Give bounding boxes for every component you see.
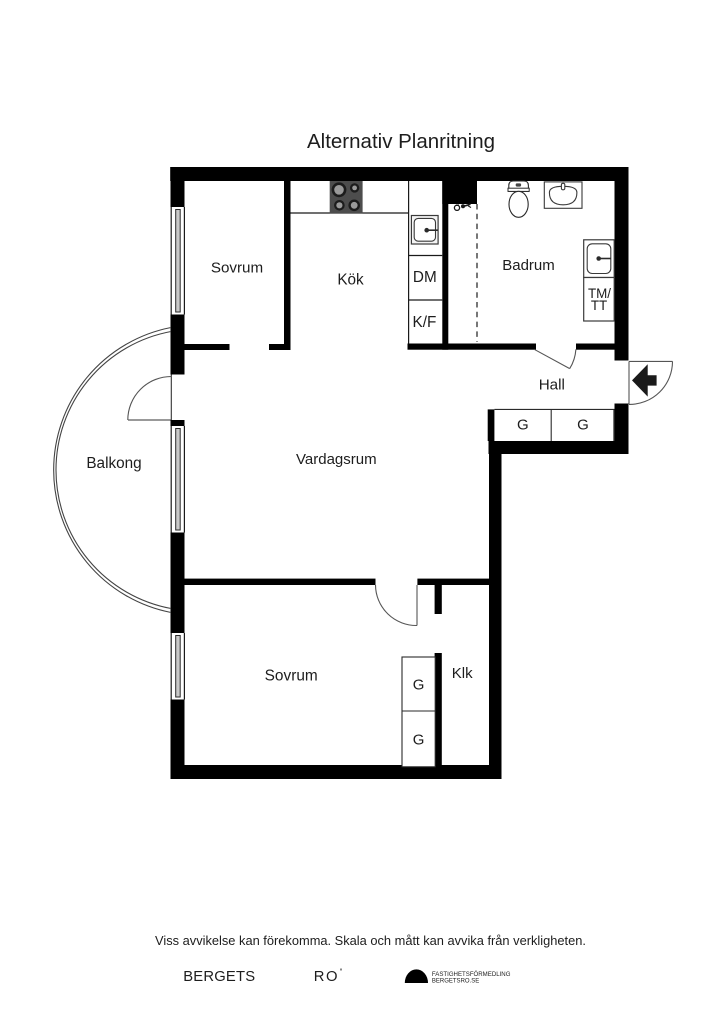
svg-text:BERGETS: BERGETS (183, 969, 255, 985)
svg-text:Kök: Kök (337, 272, 364, 289)
svg-text:BERGETSRO.SE: BERGETSRO.SE (432, 979, 479, 985)
svg-text:RO: RO (314, 969, 339, 985)
svg-text:G: G (577, 416, 589, 433)
svg-text:Balkong: Balkong (86, 455, 141, 472)
svg-text:Sovrum: Sovrum (211, 259, 263, 276)
svg-text:Vardagsrum: Vardagsrum (296, 451, 377, 468)
svg-text:TT: TT (591, 298, 607, 313)
svg-text:Sovrum: Sovrum (265, 667, 318, 684)
svg-text:G: G (413, 676, 425, 693)
svg-text:Alternativ Planritning: Alternativ Planritning (307, 130, 495, 153)
svg-text:Badrum: Badrum (502, 257, 555, 274)
svg-text:FASTIGHETSFÖRMEDLING: FASTIGHETSFÖRMEDLING (432, 971, 511, 978)
svg-text:Klk: Klk (452, 665, 473, 682)
svg-text:G: G (413, 731, 425, 748)
svg-text:G: G (517, 416, 529, 433)
svg-text:K/F: K/F (413, 314, 437, 331)
svg-text:DM: DM (413, 269, 437, 286)
svg-text:Hall: Hall (539, 376, 565, 393)
svg-text:Viss avvikelse kan förekomma.: Viss avvikelse kan förekomma. Skala och … (155, 933, 586, 948)
